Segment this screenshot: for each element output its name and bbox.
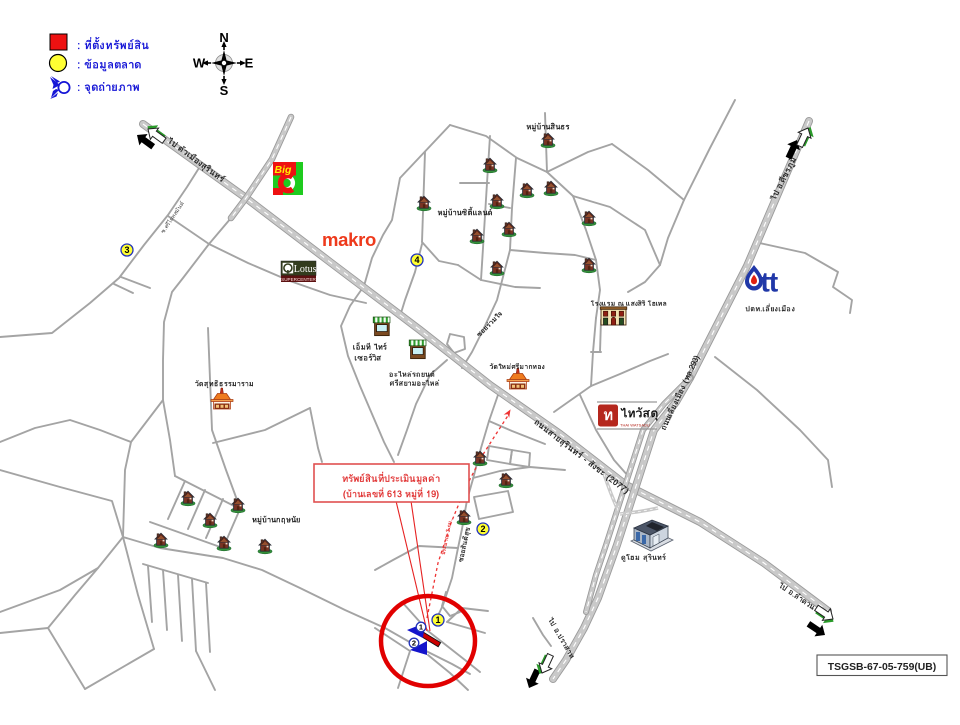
svg-text:makro: makro <box>322 229 376 250</box>
svg-text:2: 2 <box>412 639 416 648</box>
svg-text:Lotus: Lotus <box>294 264 317 275</box>
svg-text:TSGSB-67-05-759(UB): TSGSB-67-05-759(UB) <box>828 662 937 673</box>
svg-text:E: E <box>245 56 254 71</box>
svg-text:1: 1 <box>419 623 423 632</box>
svg-text:SUPERCENTER: SUPERCENTER <box>281 277 316 282</box>
svg-text:3: 3 <box>124 245 129 255</box>
svg-text:4: 4 <box>414 255 419 265</box>
svg-text:THAI WATSADU: THAI WATSADU <box>620 423 650 428</box>
svg-text:W: W <box>193 56 206 71</box>
svg-text:N: N <box>219 30 228 45</box>
svg-text:tt: tt <box>761 267 778 298</box>
svg-text:1: 1 <box>435 615 440 625</box>
svg-text:Big: Big <box>275 164 293 176</box>
svg-text:2: 2 <box>480 524 485 534</box>
svg-text:S: S <box>220 83 229 98</box>
